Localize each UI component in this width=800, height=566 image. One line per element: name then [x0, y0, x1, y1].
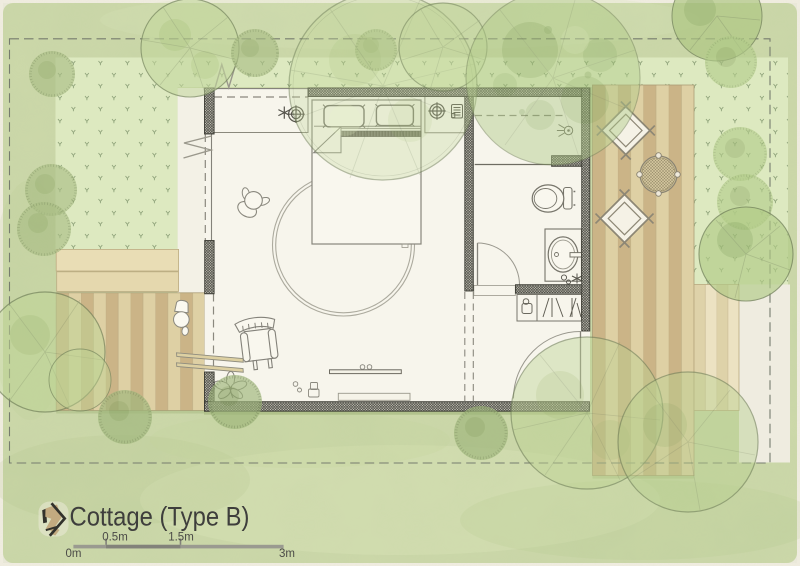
svg-text:Cottage (Type B): Cottage (Type B)	[70, 502, 250, 532]
svg-text:1.5m: 1.5m	[168, 532, 194, 544]
svg-text:3m: 3m	[279, 548, 295, 560]
svg-text:0.5m: 0.5m	[102, 532, 128, 544]
svg-text:0m: 0m	[66, 548, 82, 560]
